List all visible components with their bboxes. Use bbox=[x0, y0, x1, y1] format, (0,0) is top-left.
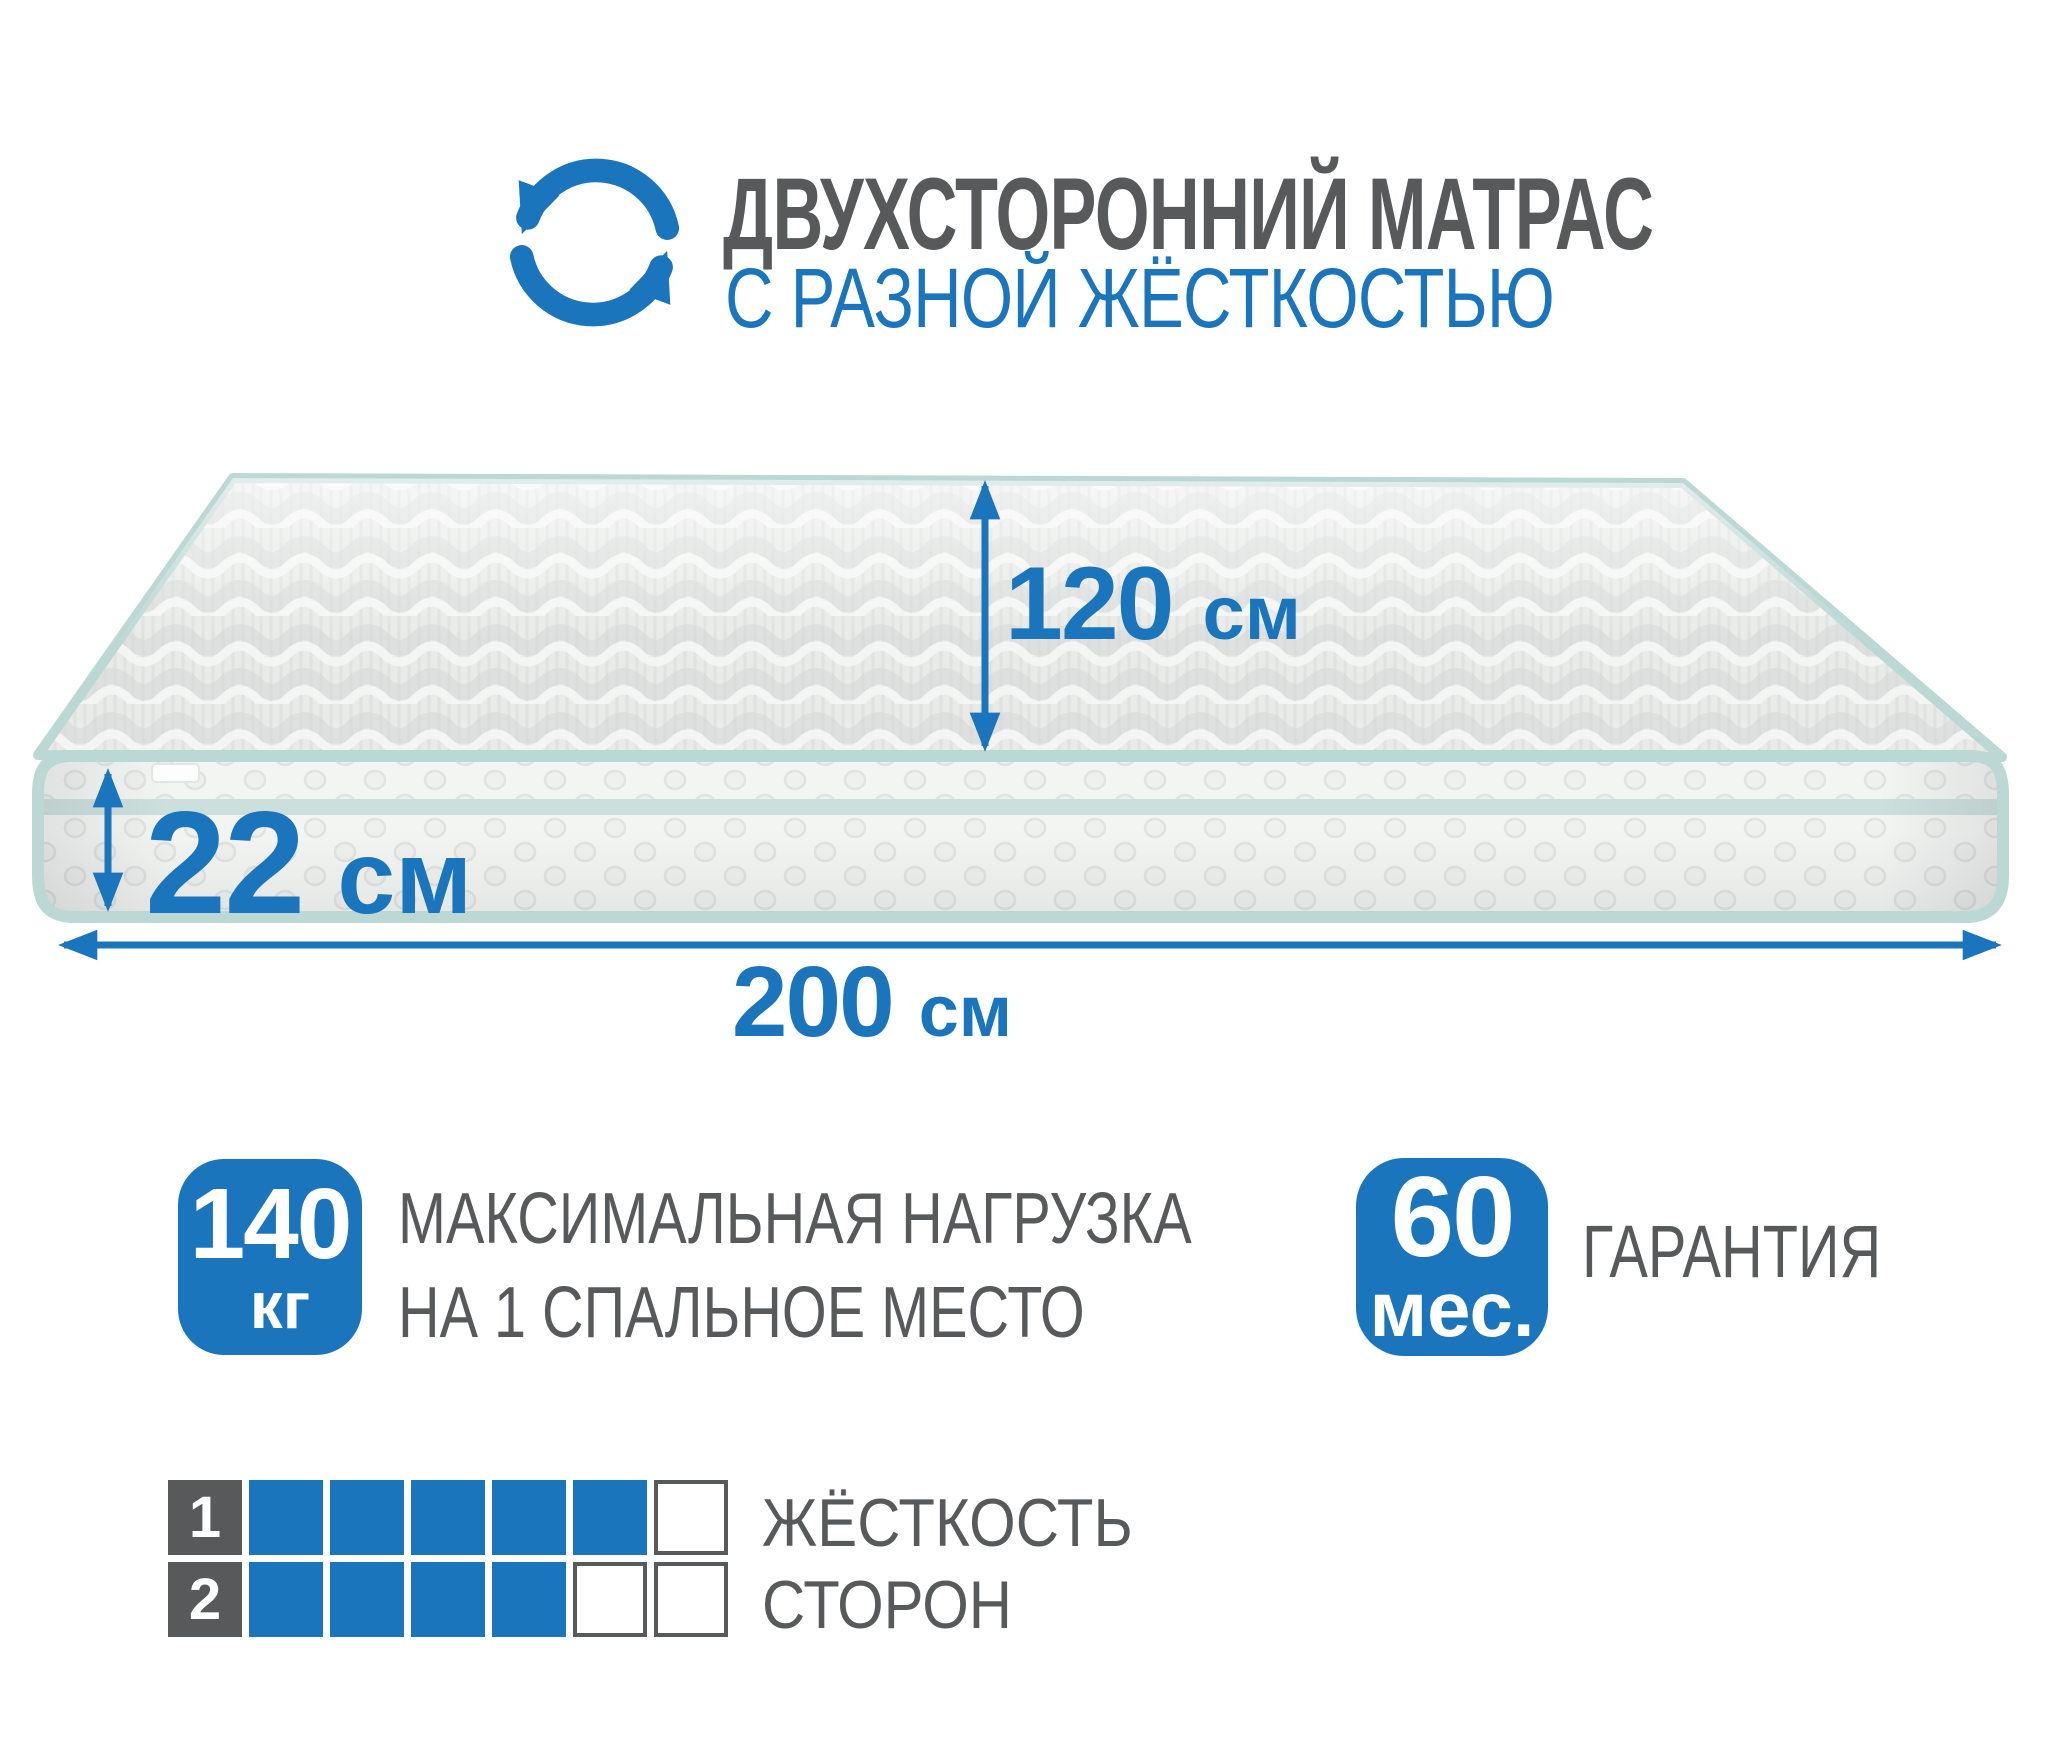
firmness-cell-filled bbox=[249, 1480, 323, 1555]
mattress-infographic-page: ДВУХСТОРОННИЙ МАТРАС С РАЗНОЙ ЖЁСТКОСТЬЮ bbox=[0, 0, 2048, 1757]
firmness-cell-filled bbox=[330, 1480, 404, 1555]
max-load-unit: кг bbox=[250, 1272, 311, 1338]
max-load-value: 140 bbox=[190, 1177, 351, 1272]
warranty-unit: мес. bbox=[1369, 1270, 1534, 1348]
firmness-cell-empty bbox=[654, 1480, 728, 1555]
firmness-cell-filled bbox=[492, 1480, 566, 1555]
firmness-row-side1: 1 bbox=[168, 1480, 728, 1555]
firmness-cell-empty bbox=[654, 1562, 728, 1637]
firmness-cell-empty bbox=[573, 1562, 647, 1637]
height-dimension-label: 22 см bbox=[145, 790, 472, 936]
firmness-cell-filled bbox=[573, 1480, 647, 1555]
length-dimension-label: 200 см bbox=[672, 952, 1072, 1052]
length-unit: см bbox=[919, 976, 1012, 1048]
warranty-label-text: ГАРАНТИЯ bbox=[1582, 1215, 1881, 1289]
width-dimension-label: 120 см bbox=[1005, 552, 1301, 656]
firmness-side-number: 1 bbox=[168, 1480, 242, 1555]
firmness-cell-filled bbox=[330, 1562, 404, 1637]
firmness-cell-filled bbox=[411, 1562, 485, 1637]
firmness-cell-filled bbox=[249, 1562, 323, 1637]
firmness-cell-filled bbox=[492, 1562, 566, 1637]
firmness-label-line2: СТОРОН bbox=[762, 1571, 1046, 1639]
firmness-row-side2: 2 bbox=[168, 1562, 728, 1637]
firmness-label-line1: ЖЁСТКОСТЬ bbox=[762, 1489, 1183, 1557]
length-value: 200 bbox=[732, 952, 893, 1052]
max-load-badge: 140 кг bbox=[178, 1159, 362, 1355]
firmness-cells bbox=[249, 1480, 728, 1555]
firmness-label-text2: СТОРОН bbox=[762, 1571, 1012, 1639]
firmness-side-number: 2 bbox=[168, 1562, 242, 1637]
warranty-label: ГАРАНТИЯ bbox=[1582, 1215, 1966, 1289]
height-value: 22 bbox=[145, 790, 303, 936]
max-load-label-line2: НА 1 СПАЛЬНОЕ МЕСТО bbox=[398, 1266, 1085, 1360]
height-unit: см bbox=[337, 826, 472, 930]
width-unit: см bbox=[1203, 576, 1302, 652]
firmness-cells bbox=[249, 1562, 728, 1637]
warranty-value: 60 bbox=[1391, 1166, 1514, 1271]
warranty-badge: 60 мес. bbox=[1356, 1158, 1548, 1356]
firmness-label-text1: ЖЁСТКОСТЬ bbox=[762, 1489, 1133, 1557]
firmness-cell-filled bbox=[411, 1480, 485, 1555]
width-value: 120 bbox=[1005, 552, 1173, 656]
max-load-label-line1: МАКСИМАЛЬНАЯ НАГРУЗКА bbox=[398, 1172, 1192, 1266]
mattress-fabric-tag bbox=[152, 764, 199, 782]
